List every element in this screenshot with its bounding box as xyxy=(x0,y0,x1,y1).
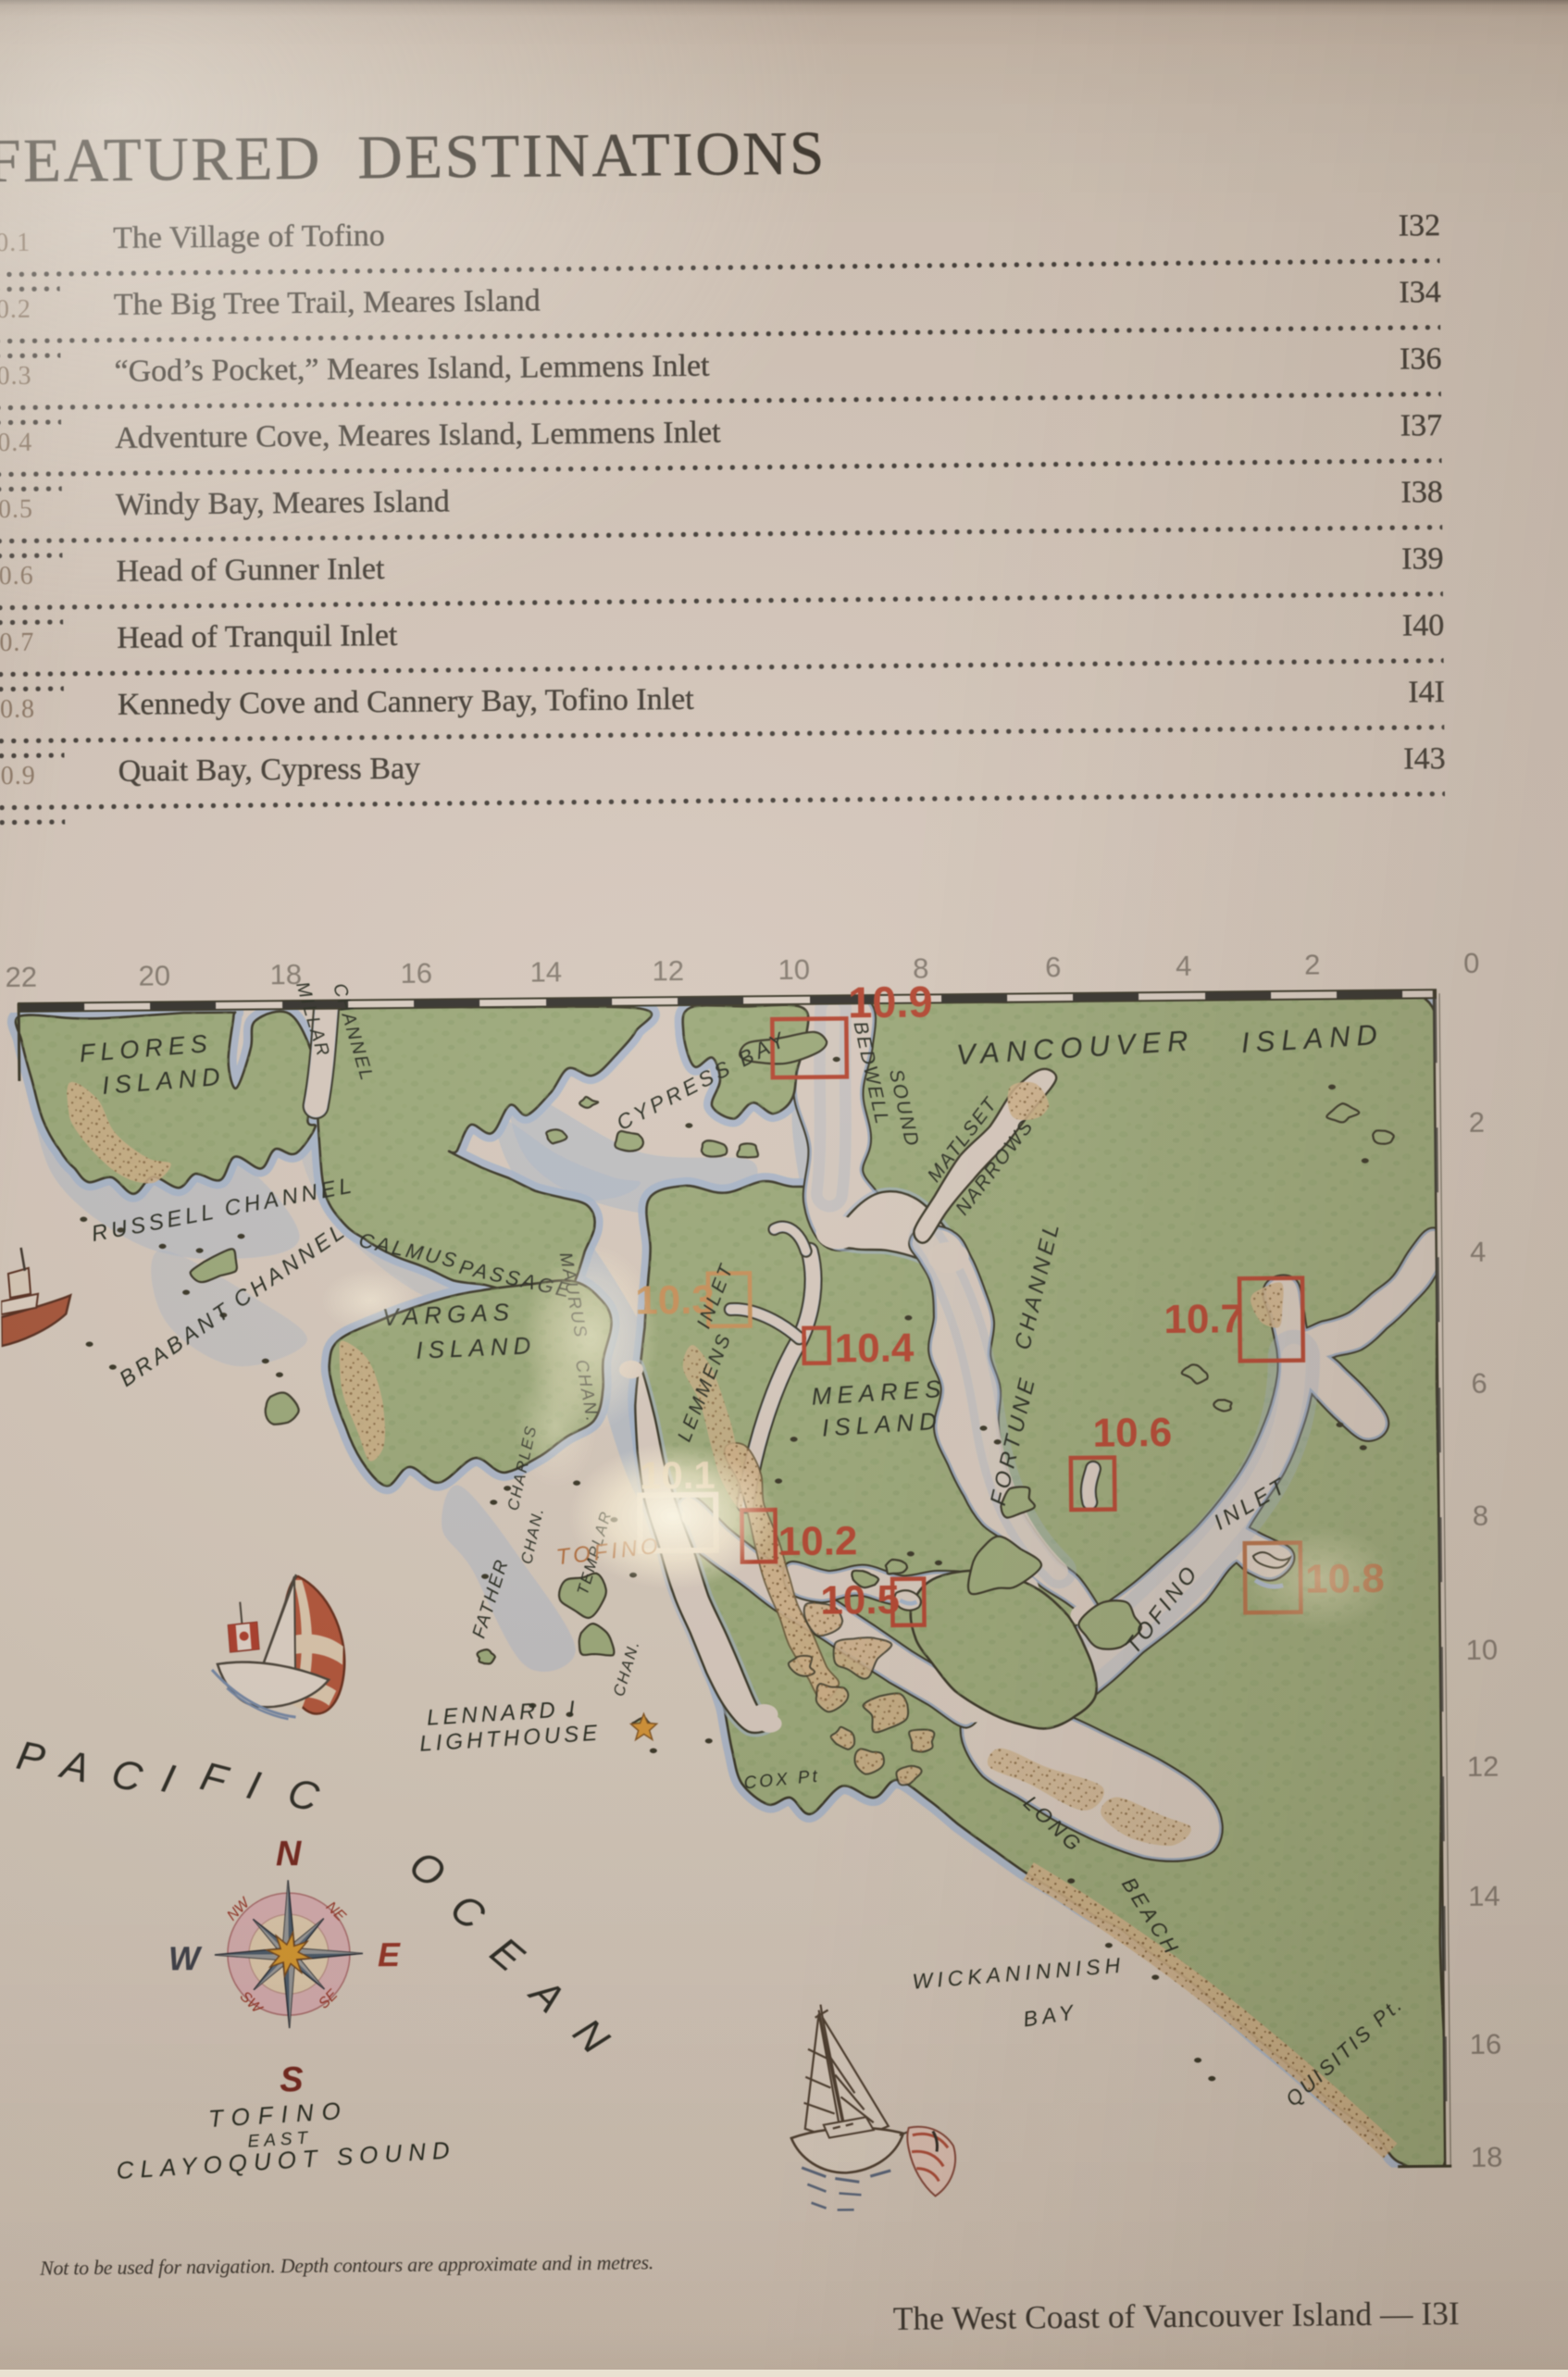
svg-text:A: A xyxy=(519,1968,572,2022)
svg-text:6: 6 xyxy=(1045,951,1062,983)
svg-text:16: 16 xyxy=(400,957,432,989)
svg-text:22: 22 xyxy=(5,961,37,993)
svg-text:F: F xyxy=(196,1753,233,1804)
svg-text:VARGAS: VARGAS xyxy=(381,1298,515,1331)
svg-text:6: 6 xyxy=(1471,1367,1487,1400)
svg-text:C: C xyxy=(107,1750,147,1801)
svg-text:E: E xyxy=(481,1928,532,1981)
svg-text:10.5: 10.5 xyxy=(820,1577,900,1624)
svg-text:C: C xyxy=(283,1770,325,1822)
svg-text:N: N xyxy=(276,1835,303,1873)
svg-text:2: 2 xyxy=(1304,948,1321,980)
svg-text:N: N xyxy=(565,2010,618,2062)
svg-text:20: 20 xyxy=(138,959,170,991)
svg-text:12: 12 xyxy=(1467,1750,1500,1783)
svg-text:C: C xyxy=(442,1885,493,1940)
svg-text:ISLAND: ISLAND xyxy=(416,1331,537,1364)
svg-text:10.7: 10.7 xyxy=(1164,1296,1243,1342)
svg-text:2: 2 xyxy=(1469,1106,1486,1139)
svg-text:O: O xyxy=(401,1842,453,1898)
svg-text:10: 10 xyxy=(778,953,810,986)
svg-text:TOFINO: TOFINO xyxy=(207,2097,349,2133)
svg-text:14: 14 xyxy=(1468,1880,1500,1912)
svg-text:4: 4 xyxy=(1470,1236,1487,1268)
svg-text:P: P xyxy=(13,1733,49,1783)
svg-text:E: E xyxy=(378,1935,401,1973)
svg-text:BAY: BAY xyxy=(1022,1999,1080,2032)
svg-text:10: 10 xyxy=(1465,1634,1498,1666)
svg-text:14: 14 xyxy=(529,955,562,988)
svg-text:WICKANINNISH: WICKANINNISH xyxy=(912,1953,1126,1994)
svg-text:A: A xyxy=(55,1741,93,1792)
svg-text:10.9: 10.9 xyxy=(848,977,933,1027)
svg-text:S: S xyxy=(280,2060,304,2099)
svg-text:0: 0 xyxy=(1463,947,1480,979)
svg-text:12: 12 xyxy=(652,954,684,987)
svg-text:10.6: 10.6 xyxy=(1092,1410,1172,1456)
svg-text:10.1: 10.1 xyxy=(640,1453,716,1498)
svg-text:10.8: 10.8 xyxy=(1305,1556,1385,1602)
svg-text:TOFINO: TOFINO xyxy=(555,1533,664,1570)
svg-text:CHAN.: CHAN. xyxy=(517,1505,547,1566)
svg-text:I: I xyxy=(243,1762,265,1810)
svg-text:16: 16 xyxy=(1470,2028,1502,2060)
svg-text:18: 18 xyxy=(1471,2141,1503,2173)
svg-text:4: 4 xyxy=(1176,950,1192,982)
svg-text:W: W xyxy=(168,1939,203,1977)
svg-text:8: 8 xyxy=(1473,1500,1489,1532)
svg-text:CHAN.: CHAN. xyxy=(610,1637,643,1699)
svg-text:10.4: 10.4 xyxy=(834,1325,915,1372)
svg-text:I: I xyxy=(157,1756,179,1803)
svg-text:10.2: 10.2 xyxy=(778,1518,857,1564)
